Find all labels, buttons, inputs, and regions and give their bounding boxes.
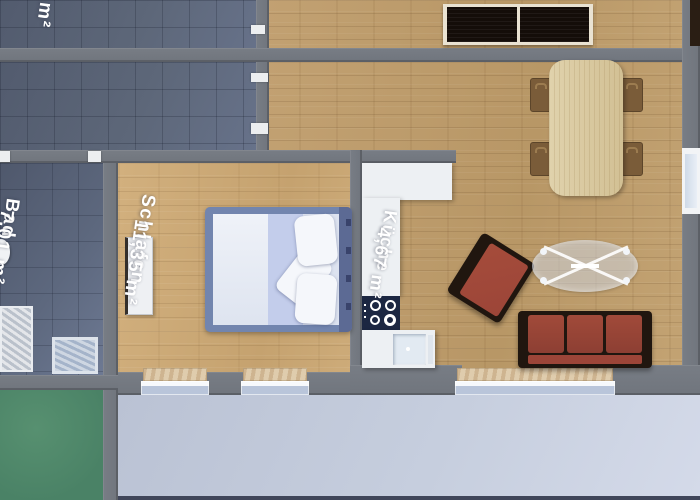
bed-pillow — [294, 273, 337, 326]
shower-tray — [0, 306, 33, 372]
dining-table — [549, 60, 623, 196]
door-jamb — [251, 25, 265, 34]
coffee-table-leg — [623, 277, 630, 284]
sink-drainboard — [428, 335, 433, 364]
coffee-table-leg — [540, 248, 547, 255]
cooktop — [362, 296, 400, 330]
coffee-table-leg — [623, 248, 630, 255]
wall-upper-vertical — [256, 0, 269, 48]
wall-bath-bottom — [0, 375, 118, 390]
window-right-glass — [685, 154, 697, 208]
door-jamb — [251, 73, 268, 82]
kitchen-sink-counter — [362, 330, 435, 368]
wall-bath-bedroom — [103, 163, 118, 500]
headboard-knob — [346, 219, 351, 226]
cooktop-burner — [385, 300, 396, 311]
door-jamb — [88, 151, 101, 162]
upper-room-cabinet — [690, 0, 700, 46]
sofa — [518, 311, 652, 368]
coffee-table-frame — [571, 264, 599, 268]
cooktop-burner — [384, 314, 396, 326]
hallway-floor-lower — [0, 62, 256, 152]
terrace-door-glass — [141, 381, 209, 395]
cooktop-burner — [370, 315, 380, 325]
sofa-cushion — [567, 315, 603, 353]
living-window-sill — [457, 368, 613, 381]
door-jamb — [0, 151, 10, 162]
floor-plan: Flur 4 m² Bad 7,01 m² Schlafen 11,35 m² … — [0, 0, 700, 500]
dining-chair — [621, 142, 643, 176]
wardrobe-panel — [447, 7, 517, 42]
terrace-door-glass — [241, 381, 309, 395]
headboard-knob — [346, 247, 351, 254]
sofa-seat — [528, 355, 642, 364]
sofa-cushion — [528, 315, 564, 353]
threshold-sill — [143, 368, 207, 381]
green-room-floor — [0, 390, 103, 500]
cooktop-burner — [370, 300, 381, 311]
bed — [205, 207, 352, 332]
wardrobe-panel — [520, 7, 589, 42]
headboard-knob — [346, 303, 351, 310]
bath-mat — [52, 337, 98, 374]
cooktop-knobs — [364, 304, 366, 322]
coffee-table-leg — [540, 277, 547, 284]
sink-faucet — [406, 347, 410, 351]
sofa-cushion — [606, 315, 642, 353]
bed-sheet — [213, 214, 268, 325]
wall-mid-horizontal — [0, 150, 456, 163]
terrace-edge — [110, 496, 700, 500]
wall-living-bottom — [611, 365, 700, 395]
door-jamb — [251, 123, 268, 134]
bed-pillow — [293, 213, 338, 267]
terrace-floor — [115, 395, 700, 500]
kitchen-counter-top — [362, 163, 452, 200]
bed-headboard — [339, 207, 352, 332]
coffee-table — [532, 240, 638, 292]
dining-chair — [621, 78, 643, 112]
headboard-knob — [346, 275, 351, 282]
threshold-sill — [243, 368, 307, 381]
living-window-glass — [455, 381, 615, 395]
wall-kitchen-bottom — [350, 365, 462, 395]
